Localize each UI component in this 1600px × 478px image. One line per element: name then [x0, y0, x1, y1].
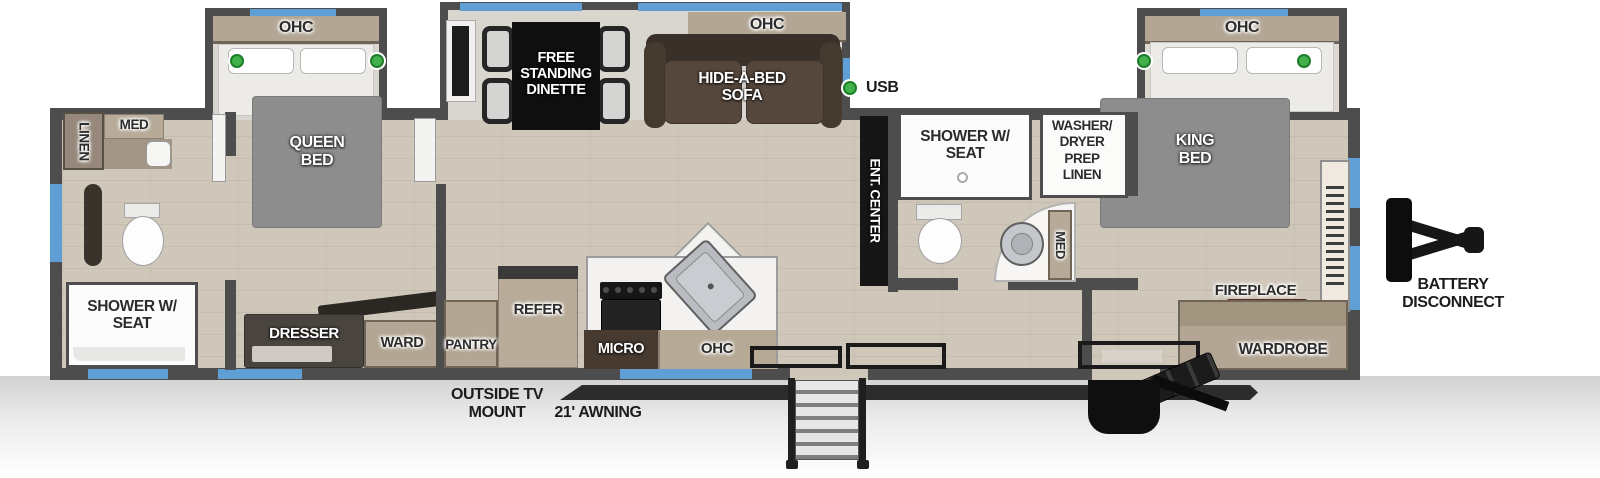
window-bottom-kitchen — [620, 369, 752, 379]
med-label: MED — [104, 118, 164, 133]
toilet — [122, 216, 164, 266]
reading-light-indicator — [230, 54, 244, 68]
bathroom-door — [212, 114, 226, 182]
window-dinette-slide-left — [460, 3, 582, 11]
entry-steps-rail — [859, 378, 866, 464]
pantry — [444, 300, 498, 368]
wall-midbath-bottom-left — [888, 278, 958, 290]
window-bottom-shower — [88, 369, 168, 379]
bath-sink — [146, 141, 171, 167]
fold-step-pedestal — [1088, 380, 1160, 434]
dinette-chair — [482, 26, 514, 72]
refer-label: REFER — [498, 302, 578, 319]
entry-threshold — [846, 343, 946, 369]
window-bottom-dresser — [218, 369, 302, 379]
mid-med-label: MED — [1053, 231, 1067, 259]
step-foot — [857, 460, 869, 469]
usb-indicator — [843, 81, 857, 95]
wall-bath-bedroom-upper — [225, 112, 236, 156]
king-pillow-left — [1162, 47, 1238, 74]
dresser-drawer — [252, 346, 332, 362]
reading-light-indicator — [1297, 54, 1311, 68]
dinette-chair — [482, 78, 514, 124]
dinette-label: FREE STANDING DINETTE — [515, 50, 597, 99]
pantry-label: PANTRY — [442, 338, 500, 353]
toilet — [918, 218, 962, 264]
dresser-label: DRESSER — [254, 326, 354, 343]
entertainment-center: ENT. CENTER — [860, 116, 890, 286]
sofa-label: HIDE-A-BED SOFA — [682, 70, 802, 105]
mid-shower-label: SHOWER W/ SEAT — [915, 128, 1015, 162]
queen-bed-label: QUEEN BED — [285, 134, 349, 170]
entry-steps-rail — [788, 378, 795, 464]
wall-bath-bedroom-lower — [225, 280, 236, 370]
window-rear — [50, 184, 62, 262]
wall-midbath-right — [1128, 112, 1138, 196]
linen-label: LINEN — [76, 122, 91, 161]
mid-med-cabinet: MED — [1048, 210, 1072, 280]
propane-tongue-box — [1386, 198, 1412, 282]
queen-ohc-label: OHC — [246, 19, 346, 37]
shower-drain — [957, 172, 968, 183]
living-tv — [452, 26, 469, 96]
fireplace-label: FIREPLACE — [1203, 283, 1308, 300]
entry-door-main-opening — [790, 368, 868, 380]
ent-center-label: ENT. CENTER — [867, 159, 882, 243]
oven — [601, 299, 661, 333]
linen-cabinet: LINEN — [63, 112, 104, 170]
dinette-chair — [598, 26, 630, 72]
entry-steps — [795, 380, 859, 460]
battery-disconnect-label: BATTERY DISCONNECT — [1383, 276, 1523, 312]
wardrobe-label: WARDROBE — [1223, 341, 1343, 358]
shower-door-panel — [84, 184, 102, 266]
reading-light-indicator — [1137, 54, 1151, 68]
step-foot — [786, 460, 798, 469]
washer-dryer-label: WASHER/ DRYER PREP LINEN — [1047, 118, 1117, 184]
stove-burners — [600, 282, 662, 299]
king-bed-label: KING BED — [1169, 132, 1221, 168]
usb-label: USB — [866, 79, 916, 97]
king-ohc-label: OHC — [1192, 19, 1292, 37]
bedroom-door — [414, 118, 436, 182]
floorplan-canvas: OHC QUEEN BED FREE STANDING DINETTE OHC … — [0, 0, 1600, 478]
sofa-ohc-label: OHC — [700, 16, 834, 34]
hitch-coupler — [1464, 227, 1484, 253]
window-dinette-slide-right — [638, 3, 842, 11]
dinette-chair — [598, 78, 630, 124]
wall-midbath-left — [888, 112, 898, 292]
rear-shower-label: SHOWER W/ SEAT — [82, 298, 182, 332]
ward-label: WARD — [364, 336, 440, 352]
queen-pillow-right — [300, 48, 366, 74]
reading-light-indicator — [370, 54, 384, 68]
refrigerator-top — [498, 266, 578, 279]
round-sink-bowl — [1011, 233, 1033, 255]
awning-label: 21' AWNING — [538, 404, 658, 422]
fireplace-unit — [1320, 160, 1350, 312]
sofa-armrest — [644, 42, 666, 128]
entry-threshold — [750, 346, 842, 368]
micro-label: MICRO — [584, 341, 658, 357]
